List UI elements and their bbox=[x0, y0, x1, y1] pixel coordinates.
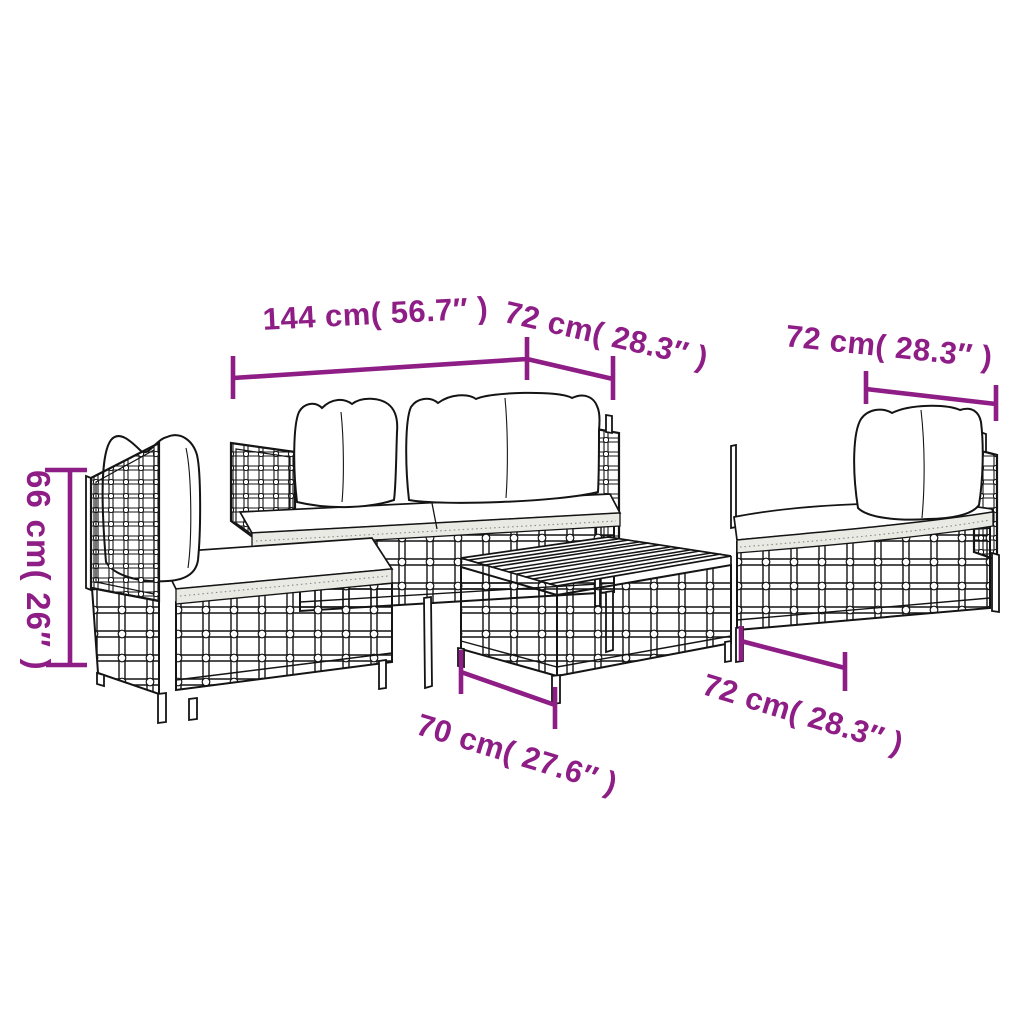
dimension-sofa-width: 144 cm( 56.7″ ) bbox=[233, 290, 527, 399]
dimension-label: 144 cm( 56.7″ ) bbox=[262, 290, 489, 337]
sofa-middle-section-right bbox=[731, 406, 999, 662]
table-right-leg bbox=[725, 641, 731, 662]
dimension-back-height: 66 cm( 26″ ) bbox=[20, 470, 87, 671]
sofa-back-cushion-right bbox=[406, 393, 599, 503]
dimension-armchair-width: 72 cm( 28.3″ ) bbox=[784, 318, 996, 421]
sofa-rear-post bbox=[606, 415, 612, 433]
armchair-back-cushion bbox=[854, 406, 983, 520]
left-module-front-leg bbox=[189, 698, 197, 720]
armchair-rear-post bbox=[731, 445, 736, 528]
dimension-label: 72 cm( 28.3″ ) bbox=[784, 318, 994, 375]
dimension-label: 66 cm( 26″ ) bbox=[20, 470, 57, 671]
left-module-back-panel bbox=[91, 443, 159, 601]
sofa-front-leg bbox=[424, 597, 432, 688]
dimension-label: 72 cm( 28.3″ ) bbox=[501, 294, 712, 375]
dimension-label: 72 cm( 28.3″ ) bbox=[699, 667, 908, 761]
dimension-section-depth-top: 72 cm( 28.3″ ) bbox=[501, 294, 712, 400]
dimension-line bbox=[233, 337, 527, 399]
left-module-rear-leg bbox=[97, 673, 104, 686]
product-dimension-diagram: 144 cm( 56.7″ ) 72 cm( 28.3″ ) 72 cm( 28… bbox=[0, 0, 1024, 1024]
sofa-back-cushion-left bbox=[294, 399, 397, 507]
armchair-rear-right-leg bbox=[992, 553, 999, 612]
left-module-right-leg bbox=[379, 660, 386, 689]
diagram-canvas: 144 cm( 56.7″ ) 72 cm( 28.3″ ) 72 cm( 28… bbox=[0, 0, 1024, 1024]
dimension-table-width: 70 cm( 27.6″ ) bbox=[413, 650, 622, 801]
left-module-front-left-leg bbox=[158, 693, 166, 723]
dimension-label: 70 cm( 27.6″ ) bbox=[413, 707, 622, 801]
coffee-table bbox=[458, 537, 731, 704]
